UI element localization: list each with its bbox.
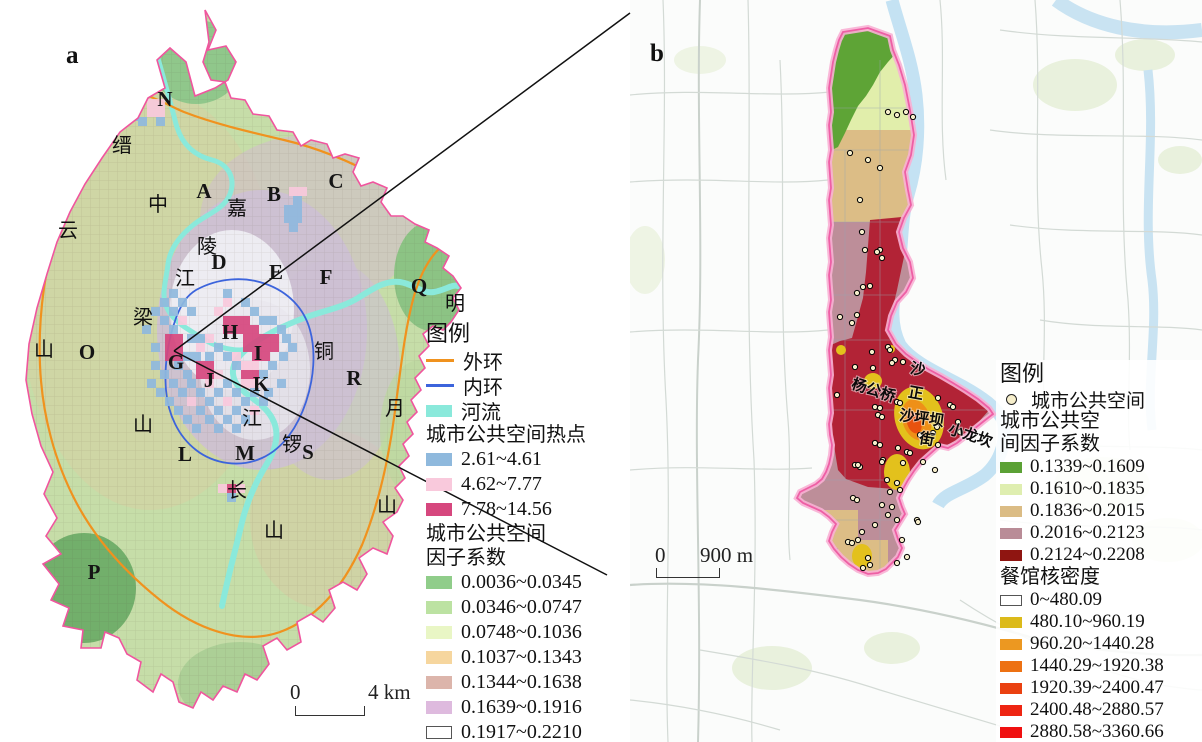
district-letter: F [320, 265, 333, 289]
legend-label: 960.20~1440.28 [1030, 633, 1154, 655]
geo-label: 嘉 [227, 197, 247, 220]
hotspot-cell [261, 343, 270, 352]
hotspot-cell [232, 388, 241, 397]
legend-label: 0.0346~0.0747 [461, 596, 582, 619]
hotspot-cell [151, 361, 160, 370]
hotspot-cell [147, 99, 156, 108]
hotspot-cell [187, 397, 196, 406]
public-space-point [837, 314, 842, 319]
legend-item: 4.62~7.77 [426, 472, 586, 497]
legend-swatch [426, 405, 452, 417]
hotspot-cell [284, 214, 293, 223]
hotspot-cell [169, 325, 178, 334]
public-space-point [894, 112, 899, 117]
legend-label: 480.10~960.19 [1030, 611, 1145, 633]
legend-label: 0.1344~0.1638 [461, 671, 582, 694]
public-space-point [870, 365, 875, 370]
legend-b-factor-title-2: 间因子系数 [1000, 433, 1202, 456]
district-letter: N [157, 87, 172, 111]
public-space-point [852, 364, 857, 369]
hotspot-cell [241, 361, 250, 370]
legend-b-kernel-items: 0~480.09480.10~960.19960.20~1440.281440.… [1000, 589, 1202, 742]
scalebar-b-start: 0 [655, 543, 666, 568]
legend-label: 0.2124~0.2208 [1030, 544, 1145, 566]
legend-item: 外环 [426, 348, 586, 373]
legend-label: 0.1836~0.2015 [1030, 500, 1145, 522]
legend-swatch [426, 478, 452, 491]
hotspot-cell [223, 298, 232, 307]
hotspot-cell [241, 397, 250, 406]
figure: 缙云山中梁山嘉陵江铜锣山明月山江长 NABCDEFQGHIJKLMRSOP [0, 0, 1202, 742]
legend-swatch [426, 503, 452, 516]
legend-label: 4.62~7.77 [461, 473, 542, 496]
legend-swatch [1000, 639, 1022, 650]
hotspot-cell [214, 343, 223, 352]
legend-b-factor-items: 0.1339~0.16090.1610~0.18350.1836~0.20150… [1000, 456, 1202, 566]
geo-label: 江 [242, 407, 262, 430]
hotspot-cell [183, 352, 192, 361]
legend-swatch [1000, 550, 1022, 561]
hotspot-cell [160, 316, 169, 325]
hotspot-cell [261, 352, 270, 361]
legend-label: 0.1917~0.2210 [461, 721, 582, 742]
public-space-point [869, 349, 874, 354]
hotspot-cell [277, 379, 286, 388]
legend-swatch [426, 726, 452, 739]
district-letter: G [168, 350, 184, 374]
legend-label: 2880.58~3360.66 [1030, 721, 1164, 742]
public-space-point [857, 197, 862, 202]
legend-item: 2880.58~3360.66 [1000, 721, 1202, 742]
district-letter: L [178, 442, 192, 466]
hotspot-cell [151, 343, 160, 352]
legend-item: 2400.48~2880.57 [1000, 699, 1202, 721]
legend-item: 0.1037~0.1343 [426, 645, 586, 670]
scalebar-b-bar [656, 568, 720, 578]
legend-label: 0~480.09 [1030, 589, 1102, 611]
public-space-point [903, 109, 908, 114]
legend-label: 0.0748~0.1036 [461, 621, 582, 644]
public-space-point [950, 404, 955, 409]
legend-swatch [426, 701, 452, 714]
legend-item: 960.20~1440.28 [1000, 633, 1202, 655]
geo-label: 明 [445, 293, 465, 315]
public-space-point [872, 404, 877, 409]
district-letter: D [211, 250, 226, 274]
panel-a-label: a [66, 42, 79, 70]
hotspot-cell [214, 370, 223, 379]
public-space-point [900, 359, 905, 364]
hotspot-cell [289, 223, 298, 232]
hotspot-cell [243, 334, 252, 343]
legend-item: 1440.29~1920.38 [1000, 655, 1202, 677]
hotspot-cell [232, 352, 241, 361]
public-space-point [865, 157, 870, 162]
hotspot-cell [232, 424, 241, 433]
hotspot-cell [183, 415, 192, 424]
scalebar-a-end: 4 km [368, 680, 411, 705]
legend-a-line-items: 外环内环河流 [426, 348, 586, 423]
public-space-point [889, 504, 894, 509]
district-letter: S [302, 440, 314, 464]
hotspot-cell [205, 334, 214, 343]
hotspot-cell [259, 316, 268, 325]
hotspot-cell [205, 397, 214, 406]
hotspot-cell [268, 361, 277, 370]
public-space-point [860, 284, 865, 289]
district-letter: A [196, 179, 212, 203]
hotspot-cell [288, 343, 297, 352]
public-space-point [877, 405, 882, 410]
legend-swatch [1000, 727, 1022, 738]
district-letter: H [222, 320, 238, 344]
legend-label: 0.1639~0.1916 [461, 696, 582, 719]
legend-swatch [1000, 661, 1022, 672]
hotspot-cell [218, 484, 227, 493]
legend-item: 0.1639~0.1916 [426, 695, 586, 720]
legend-swatch [1000, 705, 1022, 716]
legend-swatch [1000, 484, 1022, 495]
public-space-point [895, 445, 900, 450]
hotspot-cell [214, 424, 223, 433]
legend-label: 0.0036~0.0345 [461, 571, 582, 594]
public-space-point-icon [1006, 394, 1017, 405]
legend-label: 7.78~14.56 [461, 498, 552, 521]
hotspot-cell [270, 334, 279, 343]
hotspot-cell [277, 325, 286, 334]
public-space-point [862, 247, 867, 252]
place-label: 沙 [909, 360, 927, 379]
legend-b-factor-title-1: 城市公共空 [1000, 410, 1202, 433]
public-space-point [849, 540, 854, 545]
hotspot-cell [223, 289, 232, 298]
district-letter: R [346, 366, 362, 390]
legend-label: 2400.48~2880.57 [1030, 699, 1164, 721]
geo-label: 山 [377, 494, 397, 517]
hotspot-cell [268, 316, 277, 325]
public-space-point [897, 400, 902, 405]
geo-label: 月 [385, 398, 405, 420]
public-space-point [885, 512, 890, 517]
hotspot-cell [165, 334, 174, 343]
hotspot-cell [196, 406, 205, 415]
public-space-point [834, 392, 839, 397]
legend-swatch [1000, 617, 1022, 628]
hotspot-cell [169, 307, 178, 316]
hotspot-cell [259, 397, 268, 406]
public-space-point [887, 347, 892, 352]
public-space-point [879, 502, 884, 507]
public-space-point [874, 249, 879, 254]
hotspot-cell [223, 379, 232, 388]
geo-label: 锣 [282, 433, 302, 456]
hotspot-cell [192, 352, 201, 361]
public-space-point [865, 555, 870, 560]
hotspot-cell [187, 379, 196, 388]
public-space-point [900, 460, 905, 465]
public-space-point [920, 459, 925, 464]
legend-item: 0.2016~0.2123 [1000, 522, 1202, 544]
hotspot-cell [232, 406, 241, 415]
legend-swatch [426, 576, 452, 589]
hotspot-cell [156, 117, 165, 126]
legend-swatch [1000, 462, 1022, 473]
public-space-point [915, 519, 920, 524]
public-space-point [932, 467, 937, 472]
hotspot-cell [250, 325, 259, 334]
public-space-point [907, 450, 912, 455]
hotspot-cell [138, 117, 147, 126]
hotspot-cell [241, 298, 250, 307]
public-space-point [904, 554, 909, 559]
public-space-point [897, 487, 902, 492]
legend-label: 河流 [461, 396, 501, 425]
place-label: 街 [917, 429, 936, 450]
legend-b-kernel-title: 餐馆核密度 [1000, 566, 1202, 589]
legend-item: 0.0748~0.1036 [426, 620, 586, 645]
hotspot-cell [241, 325, 250, 334]
hotspot-cell [293, 214, 302, 223]
public-space-point [889, 360, 894, 365]
hotspot-cell [178, 316, 187, 325]
scalebar-b-end: 900 m [700, 543, 753, 568]
hotspot-cell [183, 370, 192, 379]
hotspot-cell [165, 397, 174, 406]
public-space-point [884, 477, 889, 482]
legend-a-factor-title-1: 城市公共空间 [426, 522, 586, 546]
hotspot-cell [284, 205, 293, 214]
district-letter: K [253, 372, 270, 396]
hotspot-cell [241, 379, 250, 388]
hotspot-cell [223, 397, 232, 406]
public-space-point [879, 255, 884, 260]
legend-item: 7.78~14.56 [426, 497, 586, 522]
place-label: 正 [907, 384, 925, 403]
legend-label: 2.61~4.61 [461, 448, 542, 471]
hotspot-cell [147, 108, 156, 117]
public-space-point [885, 109, 890, 114]
legend-item: 0.1917~0.2210 [426, 720, 586, 742]
hotspot-cell [187, 334, 196, 343]
scalebar-b: 0 900 m [650, 543, 780, 581]
legend-item: 0.1836~0.2015 [1000, 500, 1202, 522]
legend-swatch [426, 359, 454, 362]
hotspot-cell [178, 388, 187, 397]
legend-swatch [1000, 595, 1022, 606]
legend-swatch [426, 651, 452, 664]
district-letter: O [79, 340, 95, 364]
district-letter: J [204, 368, 215, 392]
legend-item: 1920.39~2400.47 [1000, 677, 1202, 699]
public-space-point [887, 489, 892, 494]
legend-a-hotspot-items: 2.61~4.614.62~7.777.78~14.56 [426, 447, 586, 522]
legend-label: 0.2016~0.2123 [1030, 522, 1145, 544]
legend-item: 河流 [426, 398, 586, 423]
legend-swatch [426, 676, 452, 689]
hotspot-cell [147, 379, 156, 388]
district-letter: Q [411, 274, 427, 298]
geo-label: 山 [34, 338, 54, 361]
hotspot-cell [232, 361, 241, 370]
legend-swatch [1000, 683, 1022, 694]
legend-label: 0.1339~0.1609 [1030, 456, 1145, 478]
public-space-point [859, 529, 864, 534]
public-space-point [935, 442, 940, 447]
legend-swatch [426, 384, 454, 387]
legend-swatch [1000, 506, 1022, 517]
public-space-point [894, 480, 899, 485]
hotspot-cell [196, 334, 205, 343]
public-space-point [854, 497, 859, 502]
district-letter: C [328, 169, 343, 193]
legend-item: 0.0346~0.0747 [426, 595, 586, 620]
legend-label: 0.1610~0.1835 [1030, 478, 1145, 500]
hotspot-cell [293, 196, 302, 205]
geo-label: 江 [175, 267, 195, 290]
public-space-point [899, 537, 904, 542]
legend-a-factor-title-2: 因子系数 [426, 546, 586, 570]
hotspot-cell [192, 424, 201, 433]
hotspot-cell [174, 334, 183, 343]
geo-label: 山 [133, 413, 153, 436]
legend-item: 480.10~960.19 [1000, 611, 1202, 633]
legend-a-hotspot-title: 城市公共空间热点 [426, 423, 586, 447]
scalebar-a-bar [295, 706, 365, 716]
legend-swatch [1000, 528, 1022, 539]
scalebar-a-start: 0 [290, 680, 301, 705]
geo-label: 长 [227, 479, 247, 502]
hotspot-cell [241, 370, 250, 379]
legend-label: 1440.29~1920.38 [1030, 655, 1164, 677]
hotspot-cell [214, 388, 223, 397]
hotspot-cell [160, 298, 169, 307]
legend-panel-b: 图例 城市公共空间 城市公共空 间因子系数 0.1339~0.16090.161… [996, 360, 1202, 742]
public-space-point [860, 565, 865, 570]
hotspot-cell [223, 415, 232, 424]
hotspot-cell [270, 343, 279, 352]
scalebar-a: 0 4 km [285, 680, 425, 720]
hotspot-cell [174, 406, 183, 415]
hotspot-cell [241, 316, 250, 325]
public-space-point [854, 312, 859, 317]
legend-item: 0.0036~0.0345 [426, 570, 586, 595]
hotspot-cell [261, 334, 270, 343]
public-space-point [935, 395, 940, 400]
public-space-point [877, 165, 882, 170]
legend-swatch [426, 626, 452, 639]
hotspot-cell [156, 388, 165, 397]
public-space-point [910, 114, 915, 119]
legend-item: 0~480.09 [1000, 589, 1202, 611]
public-space-point [879, 414, 884, 419]
public-space-point [855, 537, 860, 542]
public-space-point [879, 459, 884, 464]
hotspot-cell [298, 187, 307, 196]
hotspot-cell [196, 343, 205, 352]
geo-label: 铜 [314, 340, 334, 363]
hotspot-cell [205, 352, 214, 361]
legend-item: 0.1339~0.1609 [1000, 456, 1202, 478]
public-space-point [854, 290, 859, 295]
panel-b-label: b [650, 40, 664, 68]
public-space-point [867, 283, 872, 288]
hotspot-cell [282, 334, 291, 343]
district-letter: P [88, 560, 101, 584]
public-space-point [859, 229, 864, 234]
legend-b-point-label: 城市公共空间 [1031, 386, 1145, 413]
hotspot-cell [223, 352, 232, 361]
hotspot-cell [214, 406, 223, 415]
public-space-point [872, 522, 877, 527]
legend-item: 0.1610~0.1835 [1000, 478, 1202, 500]
geo-label: 缙 [112, 134, 132, 157]
legend-b-point-item: 城市公共空间 [1000, 388, 1202, 410]
hotspot-cell [187, 307, 196, 316]
district-letter: M [235, 441, 255, 465]
legend-swatch [426, 601, 452, 614]
legend-item: 内环 [426, 373, 586, 398]
hotspot-cell [205, 415, 214, 424]
public-space-point [877, 442, 882, 447]
legend-item: 0.1344~0.1638 [426, 670, 586, 695]
hotspot-cell [214, 307, 223, 316]
district-letter: I [254, 341, 262, 365]
geo-label: 梁 [133, 306, 153, 329]
legend-swatch [426, 453, 452, 466]
hotspot-cell [250, 307, 259, 316]
legend-item: 2.61~4.61 [426, 447, 586, 472]
public-space-point [849, 320, 854, 325]
public-space-point [855, 462, 860, 467]
hotspot-cell [289, 187, 298, 196]
hotspot-cell [279, 352, 288, 361]
public-space-point [894, 560, 899, 565]
geo-label: 山 [264, 519, 284, 542]
legend-item: 0.2124~0.2208 [1000, 544, 1202, 566]
public-space-point [872, 440, 877, 445]
district-letter: B [267, 182, 281, 206]
public-space-point [867, 562, 872, 567]
hotspot-cell [169, 289, 178, 298]
hotspot-cell [243, 343, 252, 352]
hotspot-cell [178, 298, 187, 307]
public-space-point [894, 517, 899, 522]
district-letter: E [269, 260, 283, 284]
legend-a-factor-items: 0.0036~0.03450.0346~0.07470.0748~0.10360… [426, 570, 586, 742]
legend-a-title: 图例 [426, 322, 586, 346]
legend-label: 0.1037~0.1343 [461, 646, 582, 669]
public-space-point [847, 150, 852, 155]
legend-panel-a: 图例 外环内环河流 城市公共空间热点 2.61~4.614.62~7.777.7… [426, 322, 586, 742]
legend-label: 1920.39~2400.47 [1030, 677, 1164, 699]
hotspot-cell [293, 205, 302, 214]
geo-label: 中 [148, 193, 168, 216]
geo-label: 云 [58, 220, 78, 242]
hotspot-cell [169, 379, 178, 388]
legend-b-title: 图例 [1000, 362, 1202, 386]
